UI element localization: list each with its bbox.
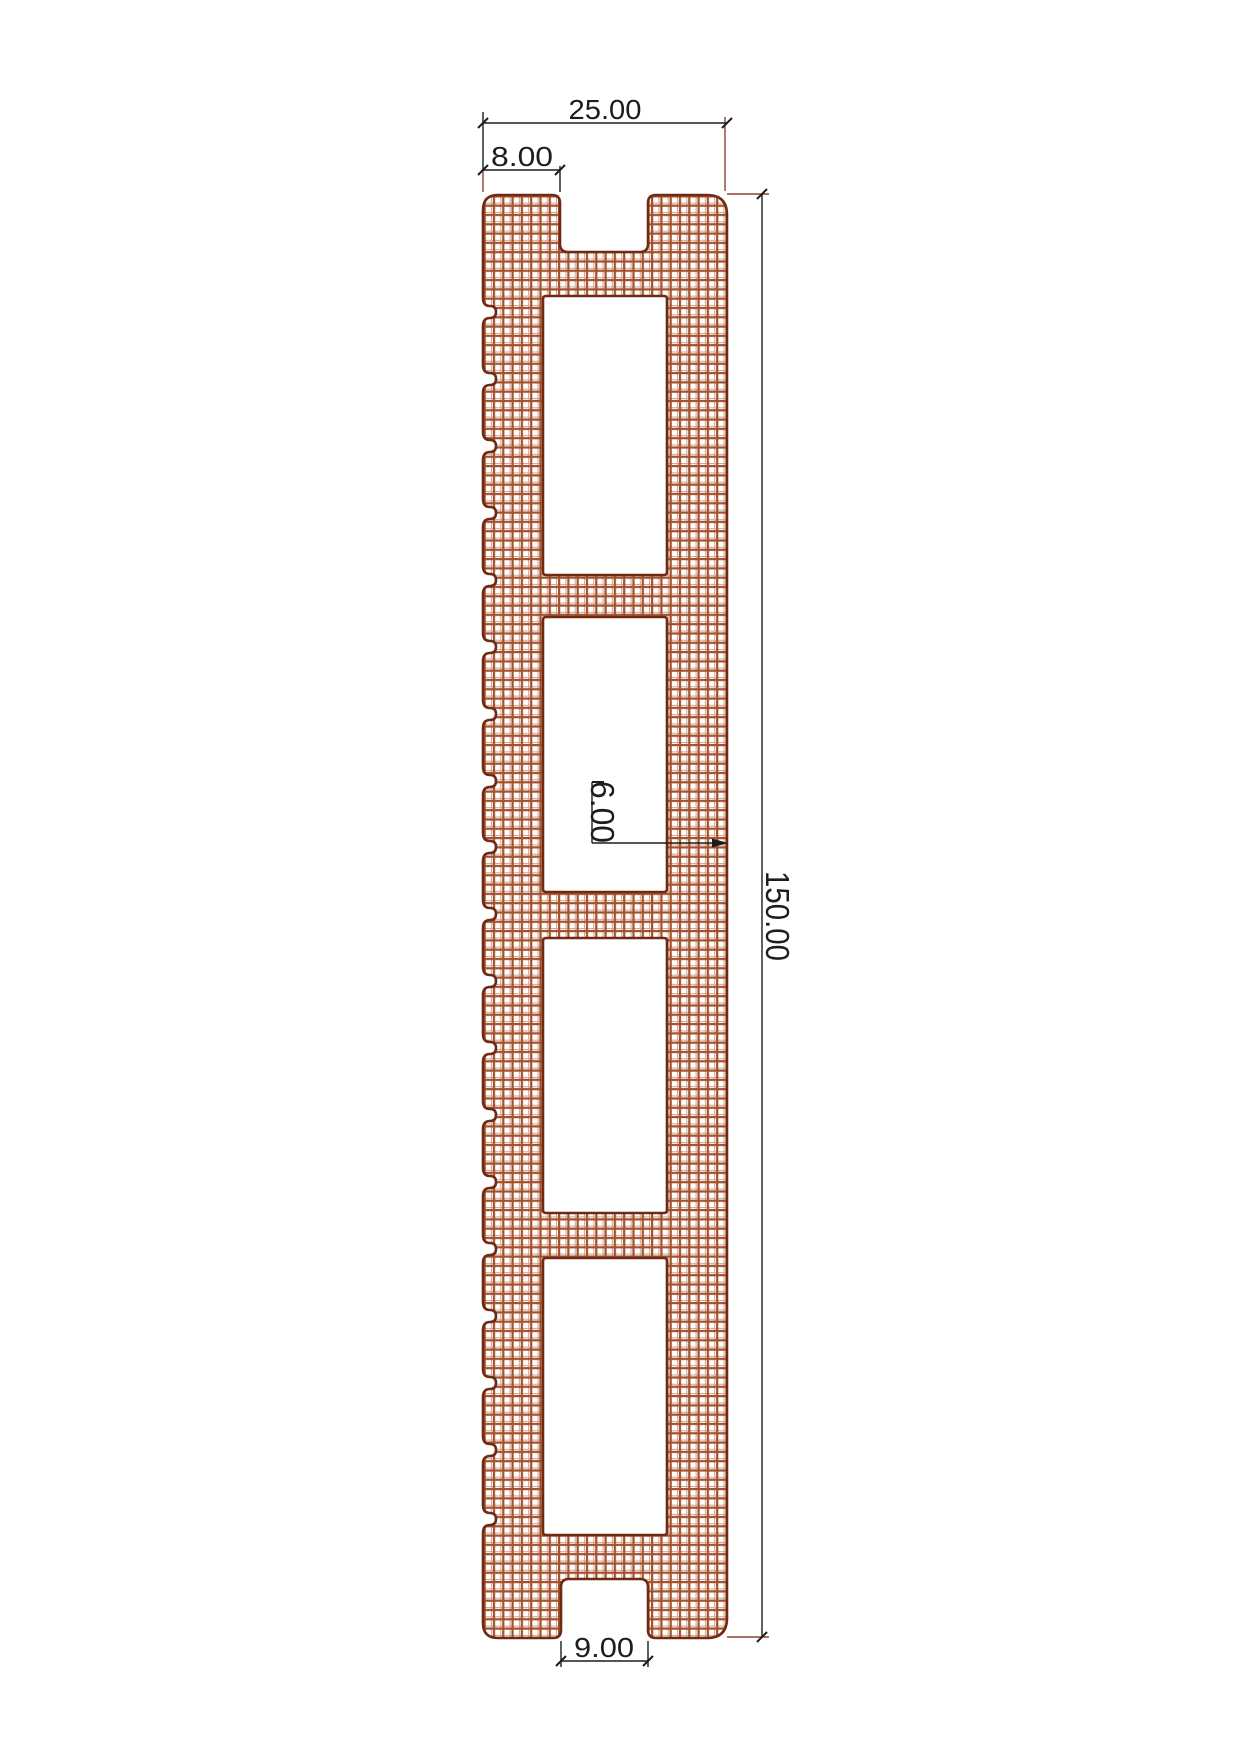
dim-top-tab-width: 8.00: [478, 141, 565, 192]
dimension-text: 6.00: [584, 781, 621, 843]
profile-cross-section: [483, 195, 727, 1638]
dimension-text: 150.00: [759, 871, 796, 961]
dimension-text: 8.00: [491, 141, 553, 172]
technical-drawing: 25.00 8.00 150.00 6.00 9.00: [0, 0, 1241, 1755]
dim-overall-length: 150.00: [727, 189, 796, 1642]
dim-bottom-groove-width: 9.00: [556, 1632, 653, 1667]
drawing-canvas: 25.00 8.00 150.00 6.00 9.00: [0, 0, 1241, 1755]
dimension-text: 25.00: [569, 94, 642, 125]
dimension-text: 9.00: [574, 1632, 634, 1663]
